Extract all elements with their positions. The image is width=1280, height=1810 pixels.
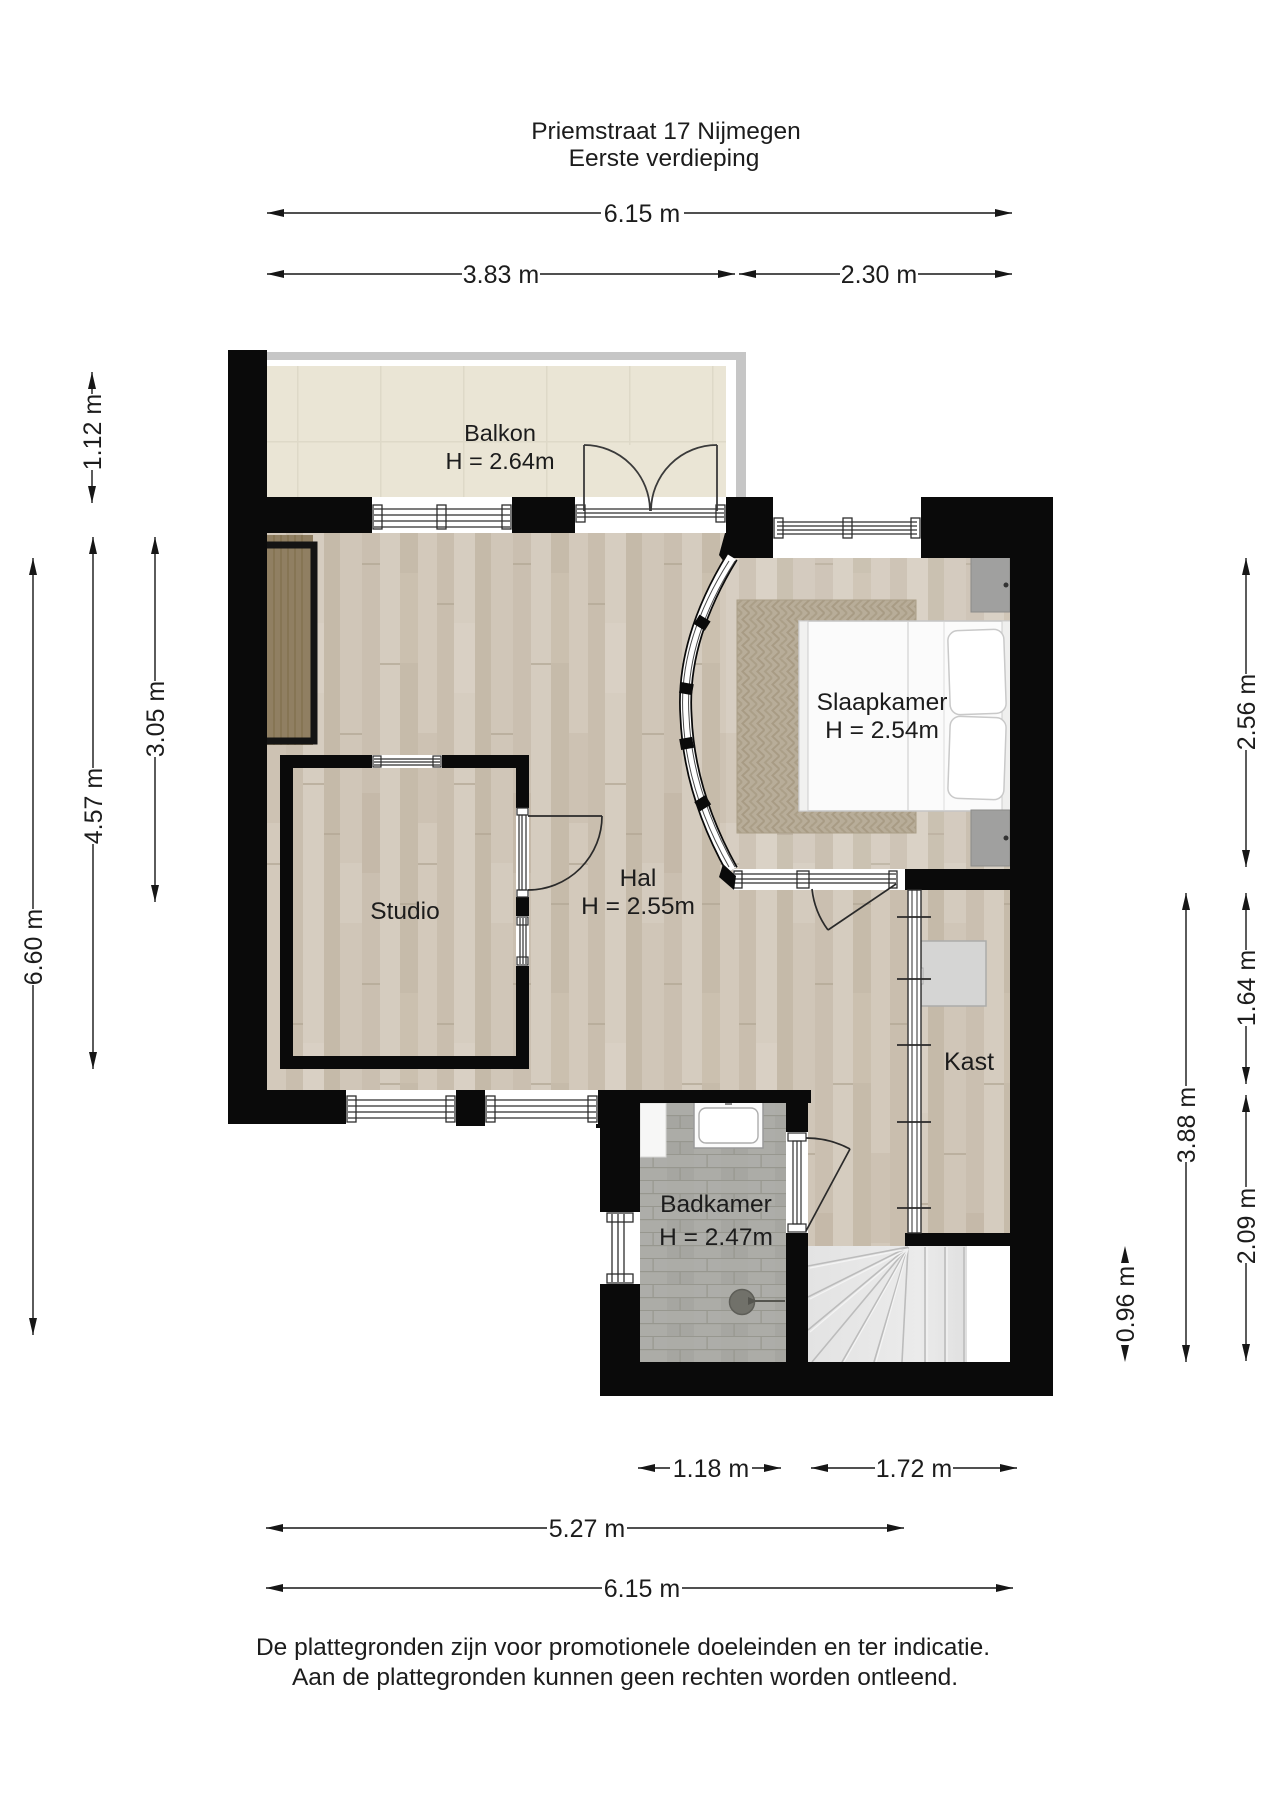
svg-text:Eerste verdieping: Eerste verdieping	[569, 145, 760, 172]
svg-text:1.12 m: 1.12 m	[79, 394, 107, 470]
svg-text:Priemstraat 17 Nijmegen: Priemstraat 17 Nijmegen	[531, 118, 801, 145]
svg-text:Hal: Hal	[620, 865, 657, 892]
svg-text:Aan de plattegronden kunnen ge: Aan de plattegronden kunnen geen rechten…	[292, 1664, 958, 1691]
svg-text:6.15 m: 6.15 m	[604, 200, 680, 228]
svg-text:Badkamer: Badkamer	[660, 1191, 772, 1218]
svg-text:3.88 m: 3.88 m	[1173, 1087, 1201, 1163]
svg-text:H = 2.54m: H = 2.54m	[825, 717, 939, 744]
svg-text:3.83 m: 3.83 m	[463, 261, 539, 289]
svg-text:1.18 m: 1.18 m	[673, 1455, 749, 1483]
svg-text:6.60 m: 6.60 m	[20, 909, 48, 985]
svg-text:H = 2.47m: H = 2.47m	[659, 1224, 773, 1251]
svg-text:Slaapkamer: Slaapkamer	[817, 689, 948, 716]
svg-text:4.57 m: 4.57 m	[80, 768, 108, 844]
svg-text:2.09 m: 2.09 m	[1233, 1188, 1261, 1264]
svg-text:H = 2.64m: H = 2.64m	[445, 448, 554, 474]
svg-text:H = 2.55m: H = 2.55m	[581, 893, 695, 920]
svg-text:1.64 m: 1.64 m	[1233, 950, 1261, 1026]
svg-text:5.27 m: 5.27 m	[549, 1515, 625, 1543]
svg-text:Kast: Kast	[944, 1048, 994, 1076]
svg-text:0.96 m: 0.96 m	[1112, 1266, 1140, 1342]
svg-text:Balkon: Balkon	[464, 420, 536, 446]
svg-text:6.15 m: 6.15 m	[604, 1575, 680, 1603]
svg-text:Studio: Studio	[370, 898, 439, 925]
svg-text:De plattegronden zijn voor pro: De plattegronden zijn voor promotionele …	[256, 1634, 990, 1661]
svg-text:2.30 m: 2.30 m	[841, 261, 917, 289]
svg-text:3.05 m: 3.05 m	[142, 681, 170, 757]
svg-text:1.72 m: 1.72 m	[876, 1455, 952, 1483]
svg-text:2.56 m: 2.56 m	[1233, 674, 1261, 750]
